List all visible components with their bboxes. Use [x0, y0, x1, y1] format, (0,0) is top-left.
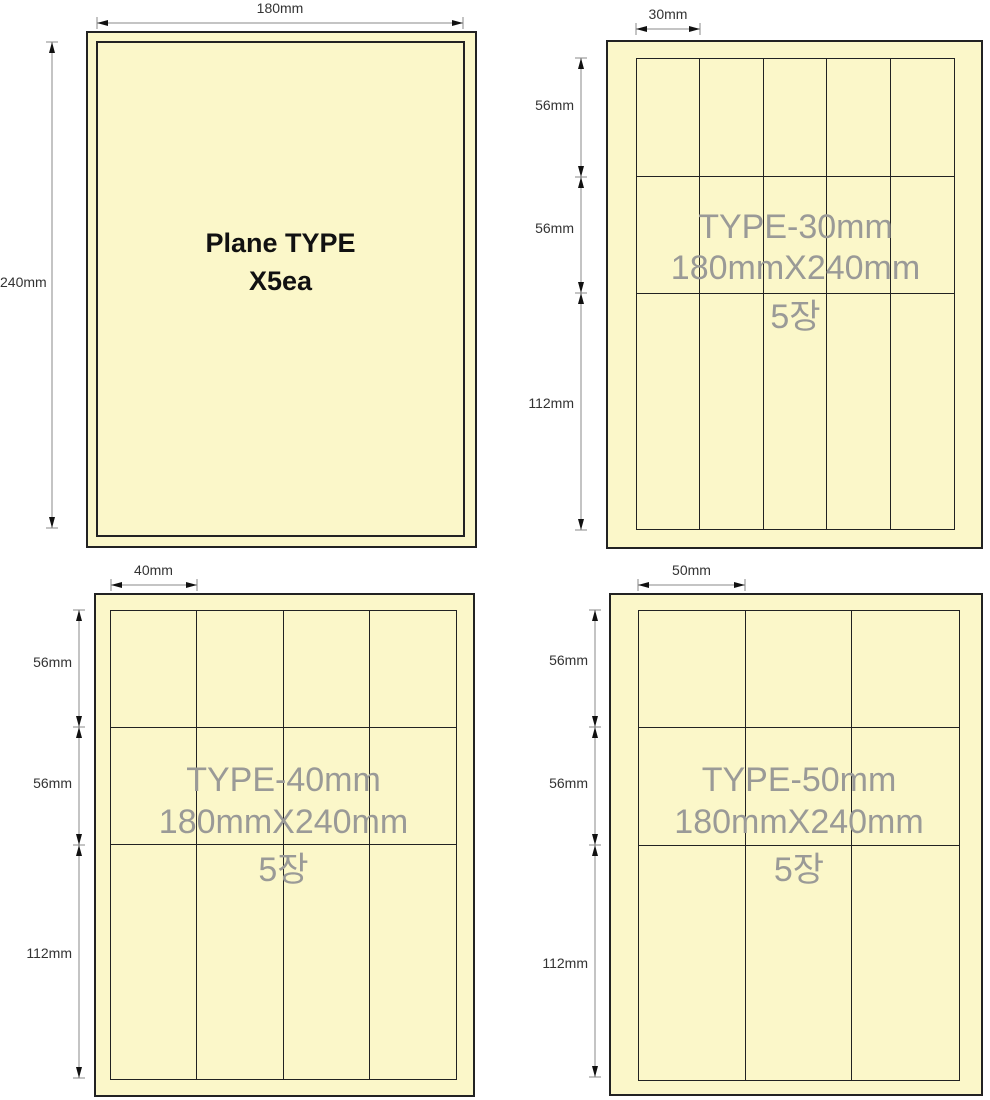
dimension-arrowhead	[636, 26, 647, 32]
dimension-arrowhead	[76, 845, 82, 856]
width-dimension-label: 180mm	[230, 0, 330, 16]
dimension-arrowhead	[49, 42, 55, 53]
dimension-arrowhead	[592, 727, 598, 738]
dimension-arrowhead	[734, 582, 745, 588]
dimension-arrowhead	[452, 20, 463, 26]
row-height-label: 56mm	[538, 775, 588, 791]
row-height-label: 112mm	[22, 945, 72, 961]
dimension-arrowhead	[592, 845, 598, 856]
dimension-lines-overlay	[0, 0, 990, 1100]
row-height-label: 56mm	[22, 654, 72, 670]
dimension-arrowhead	[638, 582, 649, 588]
row-height-label: 56mm	[524, 220, 574, 236]
dimension-arrowhead	[578, 177, 584, 188]
row-height-label: 56mm	[524, 97, 574, 113]
dimension-arrowhead	[578, 58, 584, 69]
dimension-arrowhead	[76, 727, 82, 738]
cell-width-dimension-label: 50mm	[638, 562, 745, 578]
dimension-arrowhead	[592, 1066, 598, 1077]
dimension-arrowhead	[689, 26, 700, 32]
dimension-arrowhead	[578, 282, 584, 293]
dimension-arrowhead	[76, 610, 82, 621]
dimension-arrowhead	[76, 716, 82, 727]
dimension-arrowhead	[76, 834, 82, 845]
cell-width-dimension-label: 30mm	[636, 6, 700, 22]
row-height-label: 112mm	[538, 955, 588, 971]
dimension-arrowhead	[49, 517, 55, 528]
dimension-arrowhead	[592, 716, 598, 727]
row-height-label: 56mm	[538, 652, 588, 668]
label-sheet-spec-diagram: Plane TYPE X5ea 180mm 240mm TYPE-30mm 18…	[0, 0, 990, 1100]
dimension-arrowhead	[578, 166, 584, 177]
row-height-label: 112mm	[524, 395, 574, 411]
dimension-arrowhead	[578, 293, 584, 304]
dimension-arrowhead	[97, 20, 108, 26]
dimension-arrowhead	[578, 519, 584, 530]
dimension-arrowhead	[592, 610, 598, 621]
height-dimension-label: 240mm	[0, 274, 46, 290]
dimension-arrowhead	[76, 1067, 82, 1078]
dimension-arrowhead	[111, 582, 122, 588]
dimension-arrowhead	[186, 582, 197, 588]
cell-width-dimension-label: 40mm	[110, 562, 197, 578]
dimension-arrowhead	[592, 834, 598, 845]
row-height-label: 56mm	[22, 775, 72, 791]
